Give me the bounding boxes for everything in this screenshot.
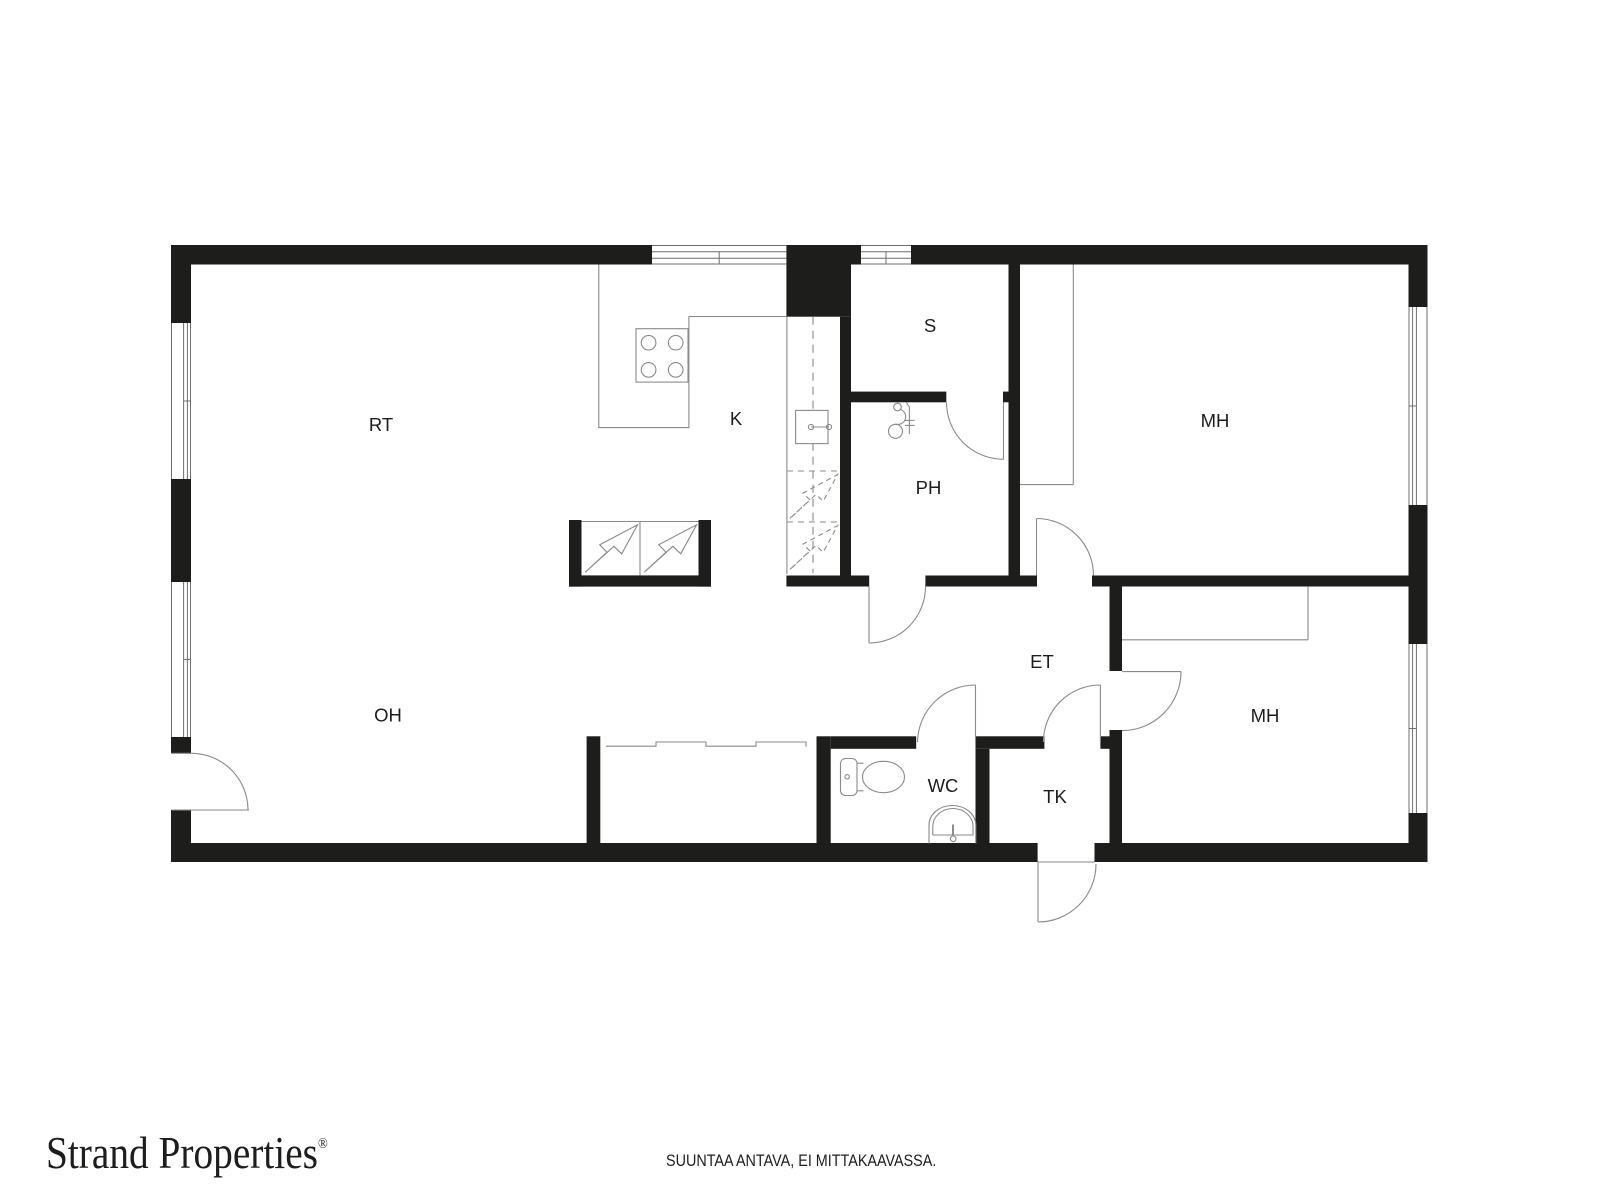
svg-text:WC: WC (928, 775, 959, 796)
svg-text:OH: OH (374, 705, 402, 726)
svg-text:K: K (730, 408, 743, 429)
svg-text:TK: TK (1043, 786, 1067, 807)
svg-text:MH: MH (1201, 410, 1230, 431)
svg-text:ET: ET (1030, 651, 1054, 672)
svg-text:PH: PH (916, 477, 942, 498)
svg-text:S: S (924, 315, 936, 336)
svg-text:RT: RT (369, 414, 393, 435)
svg-text:MH: MH (1251, 705, 1280, 726)
